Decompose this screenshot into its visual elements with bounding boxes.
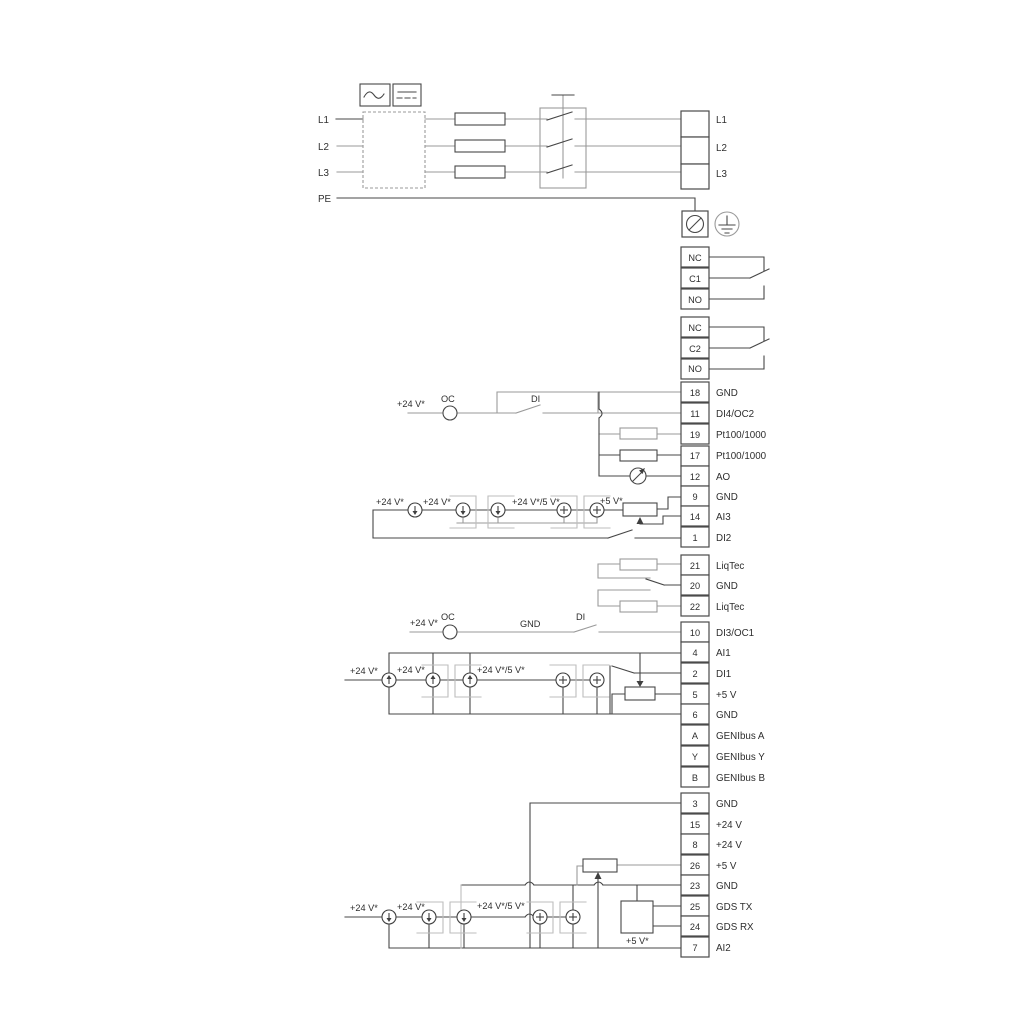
terminal-26-label: +5 V — [716, 861, 737, 872]
power-out-l3-label: L3 — [716, 169, 727, 180]
voltage-source-icon — [590, 673, 604, 687]
terminal-9-label: GND — [716, 492, 738, 503]
power-in-l2-label: L2 — [318, 142, 329, 153]
power-section: L1 L2 L3 PE L1 L2 L3 — [318, 84, 739, 237]
current-source-icon — [422, 910, 436, 924]
terminal-B-num: B — [692, 773, 698, 783]
terminal-8-num: 8 — [692, 840, 697, 850]
terminal-21-num: 21 — [690, 561, 700, 571]
emc-filter-box — [363, 112, 425, 188]
ac-symbol-box — [360, 84, 390, 106]
ai2-v24-label-2: +24 V* — [397, 902, 425, 912]
terminal-17-num: 17 — [690, 451, 700, 461]
ai3-v24v5-label: +24 V*/5 V* — [512, 497, 560, 507]
oc-circle-icon — [443, 406, 457, 420]
ai2-v24v5-label: +24 V*/5 V* — [477, 901, 525, 911]
relay1-c1-label: C1 — [689, 274, 701, 284]
wiring-diagram: L1 L2 L3 PE L1 L2 L3 NC C1 NO NC C2 NO — [0, 0, 1024, 1024]
current-source-icon — [463, 673, 477, 687]
terminal-8-label: +24 V — [716, 840, 742, 851]
di4-v24-label: +24 V* — [397, 399, 425, 409]
ai3-option-row: +24 V* +24 V* +24 V*/5 V* +5 V* — [373, 496, 681, 538]
relay2-no-label: NO — [688, 364, 702, 374]
relay2-nc-label: NC — [688, 323, 702, 333]
ai2-potentiometer — [583, 859, 617, 872]
power-terminal-l2 — [681, 137, 709, 164]
di3-row: +24 V* OC GND DI — [410, 612, 681, 639]
terminal-6-num: 6 — [692, 710, 697, 720]
dc-symbol-box — [393, 84, 421, 106]
ai3-v5-label: +5 V* — [600, 496, 623, 506]
terminal-4-label: AI1 — [716, 648, 731, 659]
power-terminal-l1 — [681, 111, 709, 137]
ai3-v24-label-2: +24 V* — [423, 497, 451, 507]
terminal-10-label: DI3/OC1 — [716, 628, 754, 639]
di4-di-label: DI — [531, 394, 540, 404]
relay1-nc-label: NC — [688, 253, 702, 263]
terminal-22-num: 22 — [690, 602, 700, 612]
relay1-no-label: NO — [688, 295, 702, 305]
terminal-24-label: GDS RX — [716, 922, 754, 933]
ai3-stems — [457, 517, 597, 523]
terminal-strip-a: 18 11 19 17 12 9 14 1 GND DI4/OC2 Pt100/… — [681, 382, 767, 547]
terminal-3-num: 3 — [692, 799, 697, 809]
liqtec-switch — [646, 579, 681, 585]
terminal-strip-b: 10 4 2 5 6 A Y B DI3/OC1 AI1 DI1 +5 V GN… — [681, 622, 765, 787]
terminal-12-label: AO — [716, 472, 731, 483]
terminal-22-label: LiqTec — [716, 602, 744, 613]
power-out-l1-label: L1 — [716, 115, 727, 126]
current-source-icon — [382, 673, 396, 687]
strip-a-wiring: +24 V* OC DI — [397, 392, 681, 484]
relay2-c2-label: C2 — [689, 344, 701, 354]
terminal-15-label: +24 V — [716, 820, 742, 831]
current-source-icon — [408, 503, 422, 517]
terminal-18-num: 18 — [690, 388, 700, 398]
terminal-strip-liqtec: 21 20 22 LiqTec GND LiqTec — [681, 555, 744, 616]
terminal-7-label: AI2 — [716, 943, 731, 954]
terminal-Y-num: Y — [692, 752, 698, 762]
terminal-26-num: 26 — [690, 861, 700, 871]
terminal-4-num: 4 — [692, 648, 697, 658]
terminal-15-num: 15 — [690, 820, 700, 830]
terminal-3-label: GND — [716, 799, 738, 810]
voltage-source-icon — [556, 673, 570, 687]
voltage-source-icon — [533, 910, 547, 924]
gds-sensor-box — [621, 901, 653, 933]
voltage-source-icon — [566, 910, 580, 924]
liqtec-sensor-2 — [620, 601, 657, 612]
gds-v5-label: +5 V* — [626, 936, 649, 946]
terminal-7-num: 7 — [692, 943, 697, 953]
ai3-potentiometer — [623, 503, 657, 516]
terminal-2-label: DI1 — [716, 669, 731, 680]
fuse-l3-icon — [455, 166, 505, 178]
ai2-pot-wiper-arrow — [595, 872, 602, 879]
terminal-11-label: DI4/OC2 — [716, 409, 754, 420]
relay-1: NC C1 NO — [681, 247, 769, 309]
di3-oc-label: OC — [441, 612, 455, 622]
relay-2-wires — [709, 327, 769, 369]
relay-1-wires — [709, 257, 769, 299]
ai3-v24-label-1: +24 V* — [376, 497, 404, 507]
ai1-pot-wiper-arrow — [637, 681, 644, 687]
power-in-l1-label: L1 — [318, 115, 329, 126]
terminal-18-label: GND — [716, 388, 738, 399]
terminal-11-num: 11 — [690, 409, 700, 419]
diagram-canvas: L1 L2 L3 PE L1 L2 L3 NC C1 NO NC C2 NO — [0, 0, 1024, 1024]
terminal-5-num: 5 — [692, 690, 697, 700]
terminal-10-num: 10 — [690, 628, 700, 638]
di3-di-label: DI — [576, 612, 585, 622]
terminal-25-label: GDS TX — [716, 902, 753, 913]
terminal-20-label: GND — [716, 581, 738, 592]
ai1-option-row: +24 V* +24 V* +24 V*/5 V* — [345, 653, 681, 714]
terminal-B-label: GENIbus B — [716, 773, 765, 784]
terminal-20-num: 20 — [690, 581, 700, 591]
terminal-17-label: Pt100/1000 — [716, 451, 767, 462]
relay-2: NC C2 NO — [681, 317, 769, 379]
power-in-l3-label: L3 — [318, 168, 329, 179]
current-source-icon — [457, 910, 471, 924]
terminal-Y-label: GENIbus Y — [716, 752, 765, 763]
ai2-gds-section: +24 V* +24 V* +24 V*/5 V* +5 V* — [345, 803, 681, 948]
liqtec-sensor-1 — [620, 559, 657, 570]
terminal-5-label: +5 V — [716, 690, 737, 701]
terminal-12-num: 12 — [690, 472, 700, 482]
terminal-A-label: GENIbus A — [716, 731, 765, 742]
pt100-resistor-2 — [620, 450, 657, 461]
terminal-A-num: A — [692, 731, 699, 741]
ai1-potentiometer — [625, 687, 655, 700]
terminal-19-num: 19 — [690, 430, 700, 440]
fuse-l1-icon — [455, 113, 505, 125]
terminal-23-num: 23 — [690, 881, 700, 891]
fuse-l2-icon — [455, 140, 505, 152]
terminal-1-label: DI2 — [716, 533, 731, 544]
di3-gnd-label: GND — [520, 619, 541, 629]
terminal-1-num: 1 — [692, 533, 697, 543]
di4-oc-label: OC — [441, 394, 455, 404]
di3-v24-label: +24 V* — [410, 618, 438, 628]
terminal-23-label: GND — [716, 881, 738, 892]
terminal-strip-c: 3 15 8 26 23 25 24 7 GND +24 V +24 V +5 … — [681, 793, 754, 957]
oc-circle-icon — [443, 625, 457, 639]
terminal-19-label: Pt100/1000 — [716, 430, 767, 441]
current-source-icon — [456, 503, 470, 517]
ai1-v24-label-2: +24 V* — [397, 665, 425, 675]
power-terminal-l3 — [681, 164, 709, 189]
current-source-icon — [491, 503, 505, 517]
current-source-icon — [382, 910, 396, 924]
liqtec-wiring — [598, 559, 681, 612]
power-in-pe-label: PE — [318, 194, 332, 205]
ai1-v24-label-1: +24 V* — [350, 666, 378, 676]
pt100-resistor-1 — [620, 428, 657, 439]
ai3-pot-wiper-arrow — [637, 517, 644, 524]
terminal-14-label: AI3 — [716, 512, 731, 523]
terminal-9-num: 9 — [692, 492, 697, 502]
power-wires-gray — [337, 96, 681, 178]
power-out-l2-label: L2 — [716, 143, 727, 154]
terminal-24-num: 24 — [690, 922, 700, 932]
terminal-21-label: LiqTec — [716, 561, 744, 572]
terminal-14-num: 14 — [690, 512, 700, 522]
terminal-6-label: GND — [716, 710, 738, 721]
ai2-v24-label-1: +24 V* — [350, 903, 378, 913]
current-source-icon — [426, 673, 440, 687]
terminal-2-num: 2 — [692, 669, 697, 679]
terminal-25-num: 25 — [690, 902, 700, 912]
ai1-v24v5-label: +24 V*/5 V* — [477, 665, 525, 675]
